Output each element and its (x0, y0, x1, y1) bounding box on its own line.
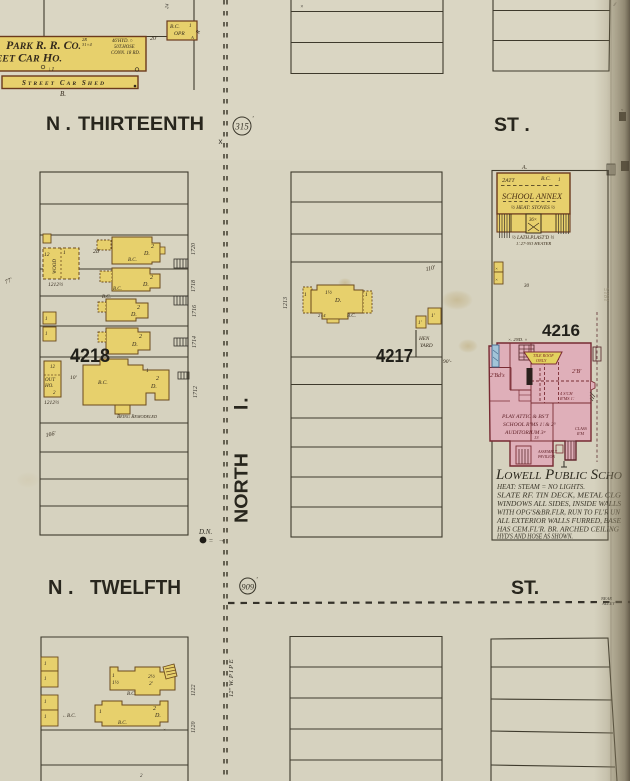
svg-text:1213: 1213 (283, 297, 289, 309)
svg-text:CONN. 18 RD.: CONN. 18 RD. (111, 51, 140, 56)
svg-text:SCHOOL R′MS 1∶ & 2⁵: SCHOOL R′MS 1∶ & 2⁵ (503, 422, 556, 428)
svg-text:20′: 20′ (150, 36, 158, 42)
svg-text:D.: D. (143, 251, 150, 257)
svg-text:B.C.: B.C. (113, 287, 122, 292)
svg-text:1720: 1720 (191, 243, 197, 255)
svg-text:OUT: OUT (45, 378, 56, 383)
svg-text:D.: D. (334, 297, 342, 304)
svg-text:30: 30 (524, 284, 530, 289)
svg-text:=: = (209, 537, 213, 545)
svg-text:HEN: HEN (418, 336, 430, 342)
svg-text:1122: 1122 (191, 684, 197, 696)
svg-text:R′M: R′M (576, 431, 584, 436)
svg-text:1: 1 (146, 368, 149, 374)
svg-text:1: 1 (44, 715, 47, 720)
svg-text:ONLY: ONLY (536, 358, 547, 363)
svg-text:1∶ 27-NO HEATER: 1∶ 27-NO HEATER (516, 241, 551, 246)
svg-text:1: 1 (44, 662, 47, 667)
svg-text:↓1: ↓1 (48, 66, 55, 73)
svg-text:13: 13 (534, 435, 539, 440)
svg-text:4217: 4217 (376, 346, 413, 366)
svg-text:90′-: 90′- (443, 359, 452, 365)
svg-text:2ATT: 2ATT (502, 177, 515, 184)
svg-text:2′Bd′s: 2′Bd′s (490, 373, 505, 379)
svg-text:×. 2ND. ×: ×. 2ND. × (508, 337, 527, 342)
svg-text:HO.: HO. (44, 384, 53, 389)
svg-text:→: → (218, 536, 225, 544)
svg-text:HEAT: STEAM = NO LIGHTS.: HEAT: STEAM = NO LIGHTS. (496, 483, 585, 491)
svg-text:1: 1 (112, 673, 115, 679)
svg-text:←B.C.: ←B.C. (62, 714, 76, 719)
svg-text:OPR: OPR (174, 31, 185, 37)
svg-text:4216: 4216 (542, 321, 580, 340)
svg-text:2′B′: 2′B′ (572, 369, 582, 375)
svg-text:WOOD: WOOD (53, 259, 58, 274)
svg-text:1212½: 1212½ (44, 399, 59, 406)
svg-text:STREET CAR SHED: STREET CAR SHED (22, 79, 104, 87)
svg-text:2: 2 (139, 334, 142, 340)
svg-text:2: 2 (150, 275, 153, 281)
svg-text:ST.: ST. (511, 577, 539, 599)
svg-text:1½: 1½ (325, 289, 332, 296)
svg-text:1714: 1714 (191, 336, 198, 348)
svg-text:1: 1 (558, 178, 561, 183)
svg-text:N .: N . (46, 113, 71, 135)
svg-text:x: x (219, 137, 223, 146)
svg-text:1: 1 (44, 700, 47, 705)
svg-text:SCHOOL ANNEX: SCHOOL ANNEX (502, 192, 563, 201)
svg-text:1: 1 (189, 24, 192, 29)
svg-text:STREET CAR HO.: STREET CAR HO. (0, 53, 62, 65)
svg-text:B.C.: B.C. (170, 24, 180, 30)
svg-text:2: 2 (137, 305, 140, 311)
svg-text:4218: 4218 (70, 346, 110, 367)
svg-text:NORTH: NORTH (232, 453, 252, 523)
svg-text:B.C.: B.C. (347, 314, 356, 319)
svg-text:B.C.: B.C. (127, 692, 136, 697)
svg-text:1120: 1120 (191, 721, 197, 733)
svg-text:×: × (495, 277, 498, 282)
svg-text:10′: 10′ (70, 375, 78, 381)
svg-text:1718: 1718 (191, 280, 197, 292)
svg-text:12: 12 (44, 252, 50, 258)
svg-text:1212½: 1212½ (48, 281, 63, 288)
svg-text:R′MS 1∶: R′MS 1∶ (559, 396, 575, 401)
svg-text:1: 1 (99, 709, 102, 715)
svg-text:1: 1 (45, 317, 48, 322)
svg-text:1½: 1½ (112, 679, 119, 686)
svg-text:28′: 28′ (93, 249, 101, 255)
svg-text:B.: B. (60, 90, 66, 98)
svg-text:THIRTEENTH: THIRTEENTH (78, 113, 204, 135)
svg-text:12: 12 (50, 365, 56, 370)
svg-text:B.C.: B.C. (98, 380, 108, 386)
svg-text:50T.HOSE: 50T.HOSE (114, 45, 135, 50)
svg-text:YARD: YARD (420, 343, 433, 349)
svg-text:D.: D. (154, 713, 161, 719)
svg-text:TWELFTH: TWELFTH (90, 577, 181, 599)
svg-text:46′HYD. ○: 46′HYD. ○ (112, 39, 133, 44)
svg-text:1: 1 (44, 677, 47, 682)
svg-text:B.C.: B.C. (128, 258, 137, 263)
svg-text:D.N.: D.N. (198, 528, 212, 536)
svg-text:AUDITORIUM 3ᵖ: AUDITORIUM 3ᵖ (504, 430, 546, 436)
svg-text:×: × (300, 4, 304, 10)
svg-text:PLAY ATTIC & BS′T: PLAY ATTIC & BS′T (501, 414, 550, 420)
svg-text:PAVILION: PAVILION (537, 454, 555, 459)
svg-text:D.: D. (131, 342, 138, 348)
svg-text:2: 2 (151, 244, 154, 250)
svg-text:B.C.: B.C. (541, 176, 551, 182)
svg-text:1: 1 (45, 332, 48, 337)
svg-text:ST .: ST . (494, 114, 530, 136)
svg-text:D.: D. (142, 282, 149, 288)
svg-text:×: × (495, 266, 498, 271)
svg-text:909: 909 (241, 582, 255, 592)
svg-text:N .: N . (48, 577, 74, 599)
svg-text:12″ W. P I P E: 12″ W. P I P E (228, 659, 235, 697)
svg-text:36×: 36× (529, 218, 537, 223)
svg-text:1: 1 (365, 292, 368, 298)
svg-text:×: × (163, 727, 166, 732)
svg-text:1716: 1716 (192, 305, 198, 317)
svg-text:2×4: 2×4 (318, 313, 326, 318)
svg-text:A.: A. (521, 165, 527, 171)
svg-text:A: A (190, 35, 194, 40)
svg-text:I.: I. (232, 395, 253, 410)
svg-text:1: 1 (63, 250, 66, 256)
svg-text:D.: D. (150, 384, 157, 390)
svg-text:2: 2 (156, 376, 159, 382)
svg-text:2: 2 (153, 706, 156, 712)
svg-text:½ HEAT: STOVES ½: ½ HEAT: STOVES ½ (511, 204, 555, 211)
svg-text:2½: 2½ (148, 673, 155, 680)
svg-text:B.C.: B.C. (118, 721, 127, 726)
svg-text:1: 1 (304, 292, 307, 298)
svg-text:315: 315 (234, 122, 249, 132)
svg-text:1712: 1712 (193, 386, 199, 398)
svg-text:31×4: 31×4 (82, 42, 93, 47)
svg-text:D.: D. (130, 312, 137, 318)
svg-text:PARK R. R. CO.: PARK R. R. CO. (6, 38, 81, 52)
svg-text:HYD′S AND HOSE AS SHOWN.: HYD′S AND HOSE AS SHOWN. (496, 533, 573, 541)
